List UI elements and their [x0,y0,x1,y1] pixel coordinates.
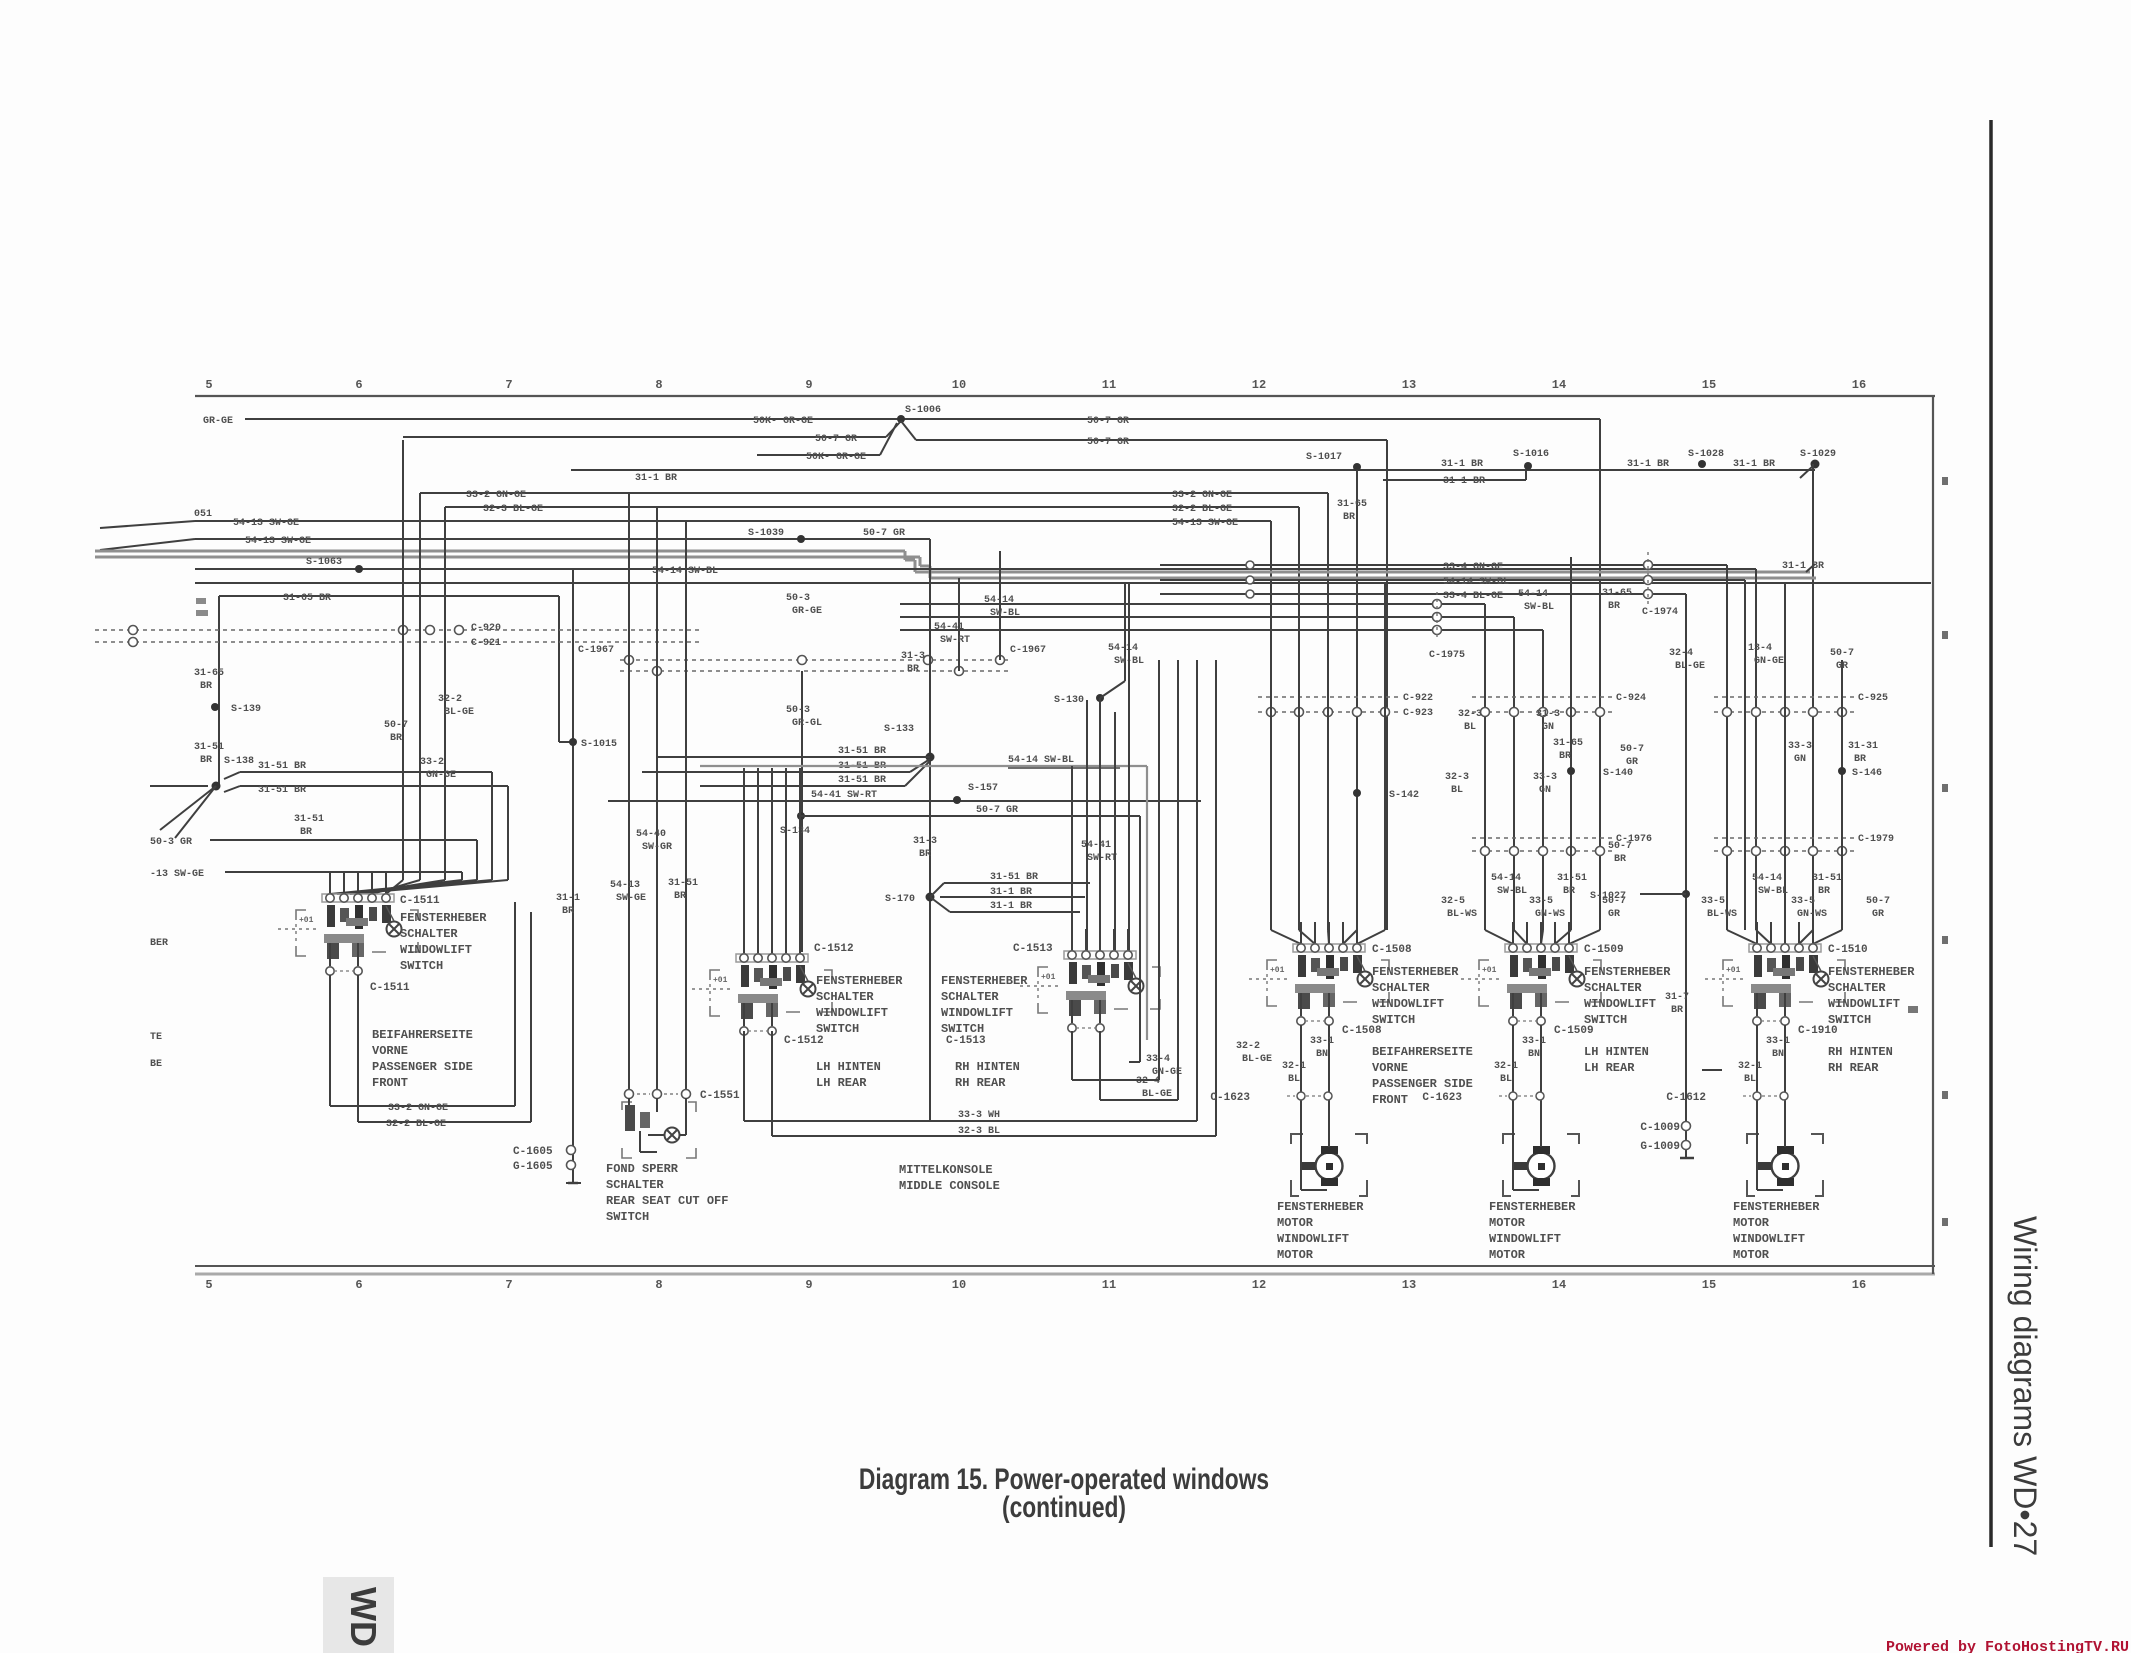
svg-text:RH REAR: RH REAR [955,1076,1006,1090]
svg-text:LH HINTEN: LH HINTEN [1584,1045,1649,1059]
svg-text:33-2 GN-GE: 33-2 GN-GE [466,490,526,501]
svg-text:BR: BR [907,664,919,675]
svg-text:S-142: S-142 [1389,790,1419,801]
svg-text:54-14 SW-BL: 54-14 SW-BL [1008,755,1074,766]
svg-text:32-3: 32-3 [1445,772,1469,783]
svg-text:31-7: 31-7 [1665,992,1689,1003]
svg-text:RH REAR: RH REAR [1828,1061,1879,1075]
svg-text:LH REAR: LH REAR [816,1076,867,1090]
svg-text:WINDOWLIFT: WINDOWLIFT [400,943,472,957]
svg-text:33-5: 33-5 [1701,896,1725,907]
svg-text:31-65: 31-65 [1602,588,1632,599]
svg-text:5: 5 [205,378,212,392]
svg-text:33-5: 33-5 [1529,896,1553,907]
svg-text:WINDOWLIFT: WINDOWLIFT [941,1006,1013,1020]
svg-text:051: 051 [194,509,212,520]
svg-text:50-7: 50-7 [1866,896,1890,907]
svg-text:33-3: 33-3 [1788,741,1812,752]
svg-text:C-1979: C-1979 [1858,834,1894,845]
svg-text:BEIFAHRERSEITE: BEIFAHRERSEITE [372,1028,473,1042]
svg-text:FENSTERHEBER: FENSTERHEBER [1372,965,1459,979]
svg-text:SW-GE: SW-GE [616,893,646,904]
svg-text:31-51: 31-51 [294,814,324,825]
svg-text:33-3 WH: 33-3 WH [958,1110,1000,1121]
svg-text:G-1605: G-1605 [513,1161,553,1173]
svg-text:50-7: 50-7 [1620,744,1644,755]
svg-text:MOTOR: MOTOR [1733,1216,1770,1230]
svg-text:7: 7 [505,1278,512,1292]
svg-text:32-3 BL-GE: 32-3 BL-GE [483,504,543,515]
svg-text:WINDOWLIFT: WINDOWLIFT [1733,1232,1805,1246]
svg-text:16: 16 [1852,1278,1866,1292]
svg-text:BR: BR [674,891,686,902]
svg-text:SCHALTER: SCHALTER [941,990,999,1004]
svg-text:GN-WS: GN-WS [1797,909,1827,920]
svg-text:-13 SW-GE: -13 SW-GE [150,869,204,880]
svg-text:WINDOWLIFT: WINDOWLIFT [1584,997,1656,1011]
svg-text:GR: GR [1626,757,1638,768]
svg-text:C-1508: C-1508 [1372,944,1412,956]
svg-text:REAR SEAT CUT OFF: REAR SEAT CUT OFF [606,1194,728,1208]
svg-text:BL-GE: BL-GE [1142,1089,1172,1100]
svg-text:BR: BR [562,906,574,917]
svg-text:11: 11 [1102,1278,1116,1292]
svg-text:MOTOR: MOTOR [1277,1248,1314,1262]
svg-text:50-7: 50-7 [1830,648,1854,659]
svg-text:BL: BL [1288,1074,1300,1085]
svg-text:50K- GR-GE: 50K- GR-GE [753,416,813,427]
svg-text:BL-GE: BL-GE [1675,661,1705,672]
svg-text:14: 14 [1552,378,1566,392]
svg-text:31-65: 31-65 [1337,499,1367,510]
svg-text:31-51 BR: 31-51 BR [838,746,886,757]
svg-text:SWITCH: SWITCH [941,1022,984,1036]
svg-text:FRONT: FRONT [372,1076,408,1090]
svg-text:C-1967: C-1967 [1010,645,1046,656]
svg-text:14: 14 [1552,1278,1566,1292]
svg-text:SCHALTER: SCHALTER [400,927,458,941]
svg-text:31-1 BR: 31-1 BR [1443,476,1485,487]
svg-text:54-40: 54-40 [636,829,666,840]
svg-text:SW-GR: SW-GR [642,842,672,853]
svg-text:31-51: 31-51 [1812,873,1842,884]
svg-text:31-1 BR: 31-1 BR [1627,459,1669,470]
svg-text:C-923: C-923 [1403,708,1433,719]
svg-text:12: 12 [1252,378,1266,392]
svg-text:FENSTERHEBER: FENSTERHEBER [1733,1200,1820,1214]
svg-text:WD: WD [343,1587,384,1647]
svg-text:WINDOWLIFT: WINDOWLIFT [1489,1232,1561,1246]
svg-text:54-14: 54-14 [1752,873,1782,884]
svg-text:32-2: 32-2 [438,694,462,705]
svg-text:54-41: 54-41 [934,622,964,633]
svg-text:54-13 SW-GE: 54-13 SW-GE [233,518,299,529]
svg-text:BR: BR [1343,512,1355,523]
svg-text:13: 13 [1402,378,1416,392]
svg-text:16: 16 [1852,378,1866,392]
svg-text:SCHALTER: SCHALTER [816,990,874,1004]
svg-text:C-921: C-921 [471,638,501,649]
svg-text:C-1009: C-1009 [1640,1122,1680,1134]
svg-text:C-1511: C-1511 [370,982,410,994]
svg-text:S-1063: S-1063 [306,557,342,568]
svg-text:S-1027: S-1027 [1590,891,1626,902]
svg-text:SCHALTER: SCHALTER [1372,981,1430,995]
svg-text:LH HINTEN: LH HINTEN [816,1060,881,1074]
svg-text:BL: BL [1744,1074,1756,1085]
svg-text:BR: BR [1818,886,1830,897]
svg-text:FENSTERHEBER: FENSTERHEBER [1277,1200,1364,1214]
svg-text:FOND SPERR: FOND SPERR [606,1162,679,1176]
svg-text:32-1: 32-1 [1282,1061,1306,1072]
svg-text:FENSTERHEBER: FENSTERHEBER [1828,965,1915,979]
svg-text:C-1512: C-1512 [814,943,854,955]
svg-text:BN: BN [1528,1049,1540,1060]
svg-text:S-1017: S-1017 [1306,452,1342,463]
svg-text:54-41 SW-RT: 54-41 SW-RT [811,790,877,801]
svg-text:50-3 GR: 50-3 GR [150,837,192,848]
svg-text:9: 9 [805,1278,812,1292]
svg-text:32-2 BL-GE: 32-2 BL-GE [1172,504,1232,515]
svg-text:GN-GE: GN-GE [426,770,456,781]
svg-text:S-1015: S-1015 [581,739,617,750]
svg-text:MOTOR: MOTOR [1277,1216,1314,1230]
svg-text:GN: GN [1539,785,1551,796]
svg-text:C-1511: C-1511 [400,895,440,907]
svg-text:G-1009: G-1009 [1640,1141,1680,1153]
svg-text:S-139: S-139 [231,704,261,715]
svg-text:PASSENGER SIDE: PASSENGER SIDE [372,1060,473,1074]
svg-text:S-1029: S-1029 [1800,449,1836,460]
svg-text:SCHALTER: SCHALTER [1828,981,1886,995]
svg-text:SW-BL: SW-BL [1758,886,1788,897]
svg-text:C-1623: C-1623 [1422,1092,1462,1104]
svg-text:54-13 SW-GE: 54-13 SW-GE [245,536,311,547]
svg-text:10: 10 [952,378,966,392]
svg-text:BR: BR [200,681,212,692]
svg-text:TE: TE [150,1032,162,1043]
svg-text:GR-GE: GR-GE [792,606,822,617]
svg-text:GR: GR [1608,909,1620,920]
svg-text:C-920: C-920 [471,623,501,634]
svg-text:C-925: C-925 [1858,693,1888,704]
svg-text:50-7 GR: 50-7 GR [1087,416,1129,427]
svg-text:31-65: 31-65 [1553,738,1583,749]
svg-text:31-1 BR: 31-1 BR [1441,459,1483,470]
svg-text:RH HINTEN: RH HINTEN [1828,1045,1893,1059]
svg-text:RH HINTEN: RH HINTEN [955,1060,1020,1074]
svg-text:GN: GN [1542,722,1554,733]
svg-text:BL-GE: BL-GE [444,707,474,718]
svg-text:31-1 BR: 31-1 BR [1733,459,1775,470]
svg-text:32-3: 32-3 [1458,709,1482,720]
svg-text:32-4: 32-4 [1669,648,1693,659]
svg-text:SW-RT: SW-RT [1087,853,1117,864]
svg-text:FENSTERHEBER: FENSTERHEBER [1584,965,1671,979]
svg-text:33-1: 33-1 [1522,1036,1546,1047]
svg-text:C-1512: C-1512 [784,1035,824,1047]
svg-text:50-7: 50-7 [1608,841,1632,852]
svg-text:SW-BL: SW-BL [1497,886,1527,897]
svg-text:33-4 GN-GE: 33-4 GN-GE [1443,562,1503,573]
svg-text:BL-WS: BL-WS [1447,909,1477,920]
svg-text:S-1006: S-1006 [905,405,941,416]
svg-text:11: 11 [1102,378,1116,392]
svg-text:54-13: 54-13 [610,880,640,891]
svg-text:MOTOR: MOTOR [1489,1248,1526,1262]
svg-text:GR: GR [1872,909,1884,920]
svg-text:Wiring diagrams WD•27: Wiring diagrams WD•27 [2007,1216,2043,1556]
svg-text:BR: BR [1563,886,1575,897]
svg-text:BL-GE: BL-GE [1242,1054,1272,1065]
svg-text:SCHALTER: SCHALTER [606,1178,664,1192]
svg-text:BR: BR [200,755,212,766]
svg-text:FENSTERHEBER: FENSTERHEBER [1489,1200,1576,1214]
svg-text:54-14: 54-14 [1518,589,1548,600]
svg-text:FENSTERHEBER: FENSTERHEBER [941,974,1028,988]
svg-text:50-7: 50-7 [384,720,408,731]
svg-text:54-14: 54-14 [984,595,1014,606]
svg-text:31-51 BR: 31-51 BR [990,872,1038,883]
svg-text:VORNE: VORNE [372,1044,408,1058]
svg-text:BR: BR [390,733,402,744]
svg-text:33-5: 33-5 [1791,896,1815,907]
svg-text:C-1509: C-1509 [1584,944,1624,956]
svg-text:10: 10 [952,1278,966,1292]
svg-text:31-51: 31-51 [1557,873,1587,884]
svg-text:13: 13 [1402,1278,1416,1292]
svg-text:FENSTERHEBER: FENSTERHEBER [816,974,903,988]
svg-text:SW-BL: SW-BL [990,608,1020,619]
svg-text:C-922: C-922 [1403,693,1433,704]
svg-text:33-2 GN-GE: 33-2 GN-GE [388,1103,448,1114]
svg-text:MOTOR: MOTOR [1489,1216,1526,1230]
svg-text:BR: BR [1614,854,1626,865]
svg-text:31-3: 31-3 [1536,709,1560,720]
svg-text:C-1513: C-1513 [1013,943,1053,955]
svg-text:31-31: 31-31 [1848,741,1878,752]
svg-text:S-146: S-146 [1852,768,1882,779]
svg-text:50-7 GR: 50-7 GR [976,805,1018,816]
svg-text:S-138: S-138 [224,756,254,767]
svg-text:33-2: 33-2 [420,757,444,768]
svg-text:BE: BE [150,1059,162,1070]
svg-text:BR: BR [919,849,931,860]
svg-text:31-1 BR: 31-1 BR [990,901,1032,912]
svg-text:31-51: 31-51 [194,742,224,753]
svg-text:32-1: 32-1 [1738,1061,1762,1072]
svg-text:54-14: 54-14 [1108,643,1138,654]
svg-text:33-1: 33-1 [1310,1036,1334,1047]
svg-text:54-41: 54-41 [1081,840,1111,851]
svg-text:FENSTERHEBER: FENSTERHEBER [400,911,487,925]
svg-text:SW-BL: SW-BL [1524,602,1554,613]
svg-text:C-1510: C-1510 [1828,944,1868,956]
svg-text:32-4: 32-4 [1136,1076,1160,1087]
svg-text:15: 15 [1702,1278,1716,1292]
svg-text:BL: BL [1500,1074,1512,1085]
svg-text:33-3: 33-3 [1533,772,1557,783]
svg-text:S-1028: S-1028 [1688,449,1724,460]
svg-text:8: 8 [655,378,662,392]
svg-text:33-1: 33-1 [1766,1036,1790,1047]
svg-text:WINDOWLIFT: WINDOWLIFT [1277,1232,1349,1246]
svg-text:50-7 GR: 50-7 GR [1087,437,1129,448]
svg-text:31-51 BR: 31-51 BR [838,775,886,786]
svg-text:33-4 BL-GE: 33-4 BL-GE [1443,591,1503,602]
svg-text:50-7 GR: 50-7 GR [815,434,857,445]
svg-text:12: 12 [1252,1278,1266,1292]
svg-text:BR: BR [1559,751,1571,762]
svg-text:32-2: 32-2 [1236,1041,1260,1052]
svg-text:BR: BR [1671,1005,1683,1016]
svg-text:32-3 BL: 32-3 BL [958,1126,1000,1137]
svg-text:MITTELKONSOLE: MITTELKONSOLE [899,1163,993,1177]
svg-text:50K- GR-GE: 50K- GR-GE [806,452,866,463]
svg-text:BEIFAHRERSEITE: BEIFAHRERSEITE [1372,1045,1473,1059]
svg-text:C-924: C-924 [1616,693,1646,704]
svg-text:C-1508: C-1508 [1342,1025,1382,1037]
svg-text:31-1: 31-1 [556,893,580,904]
svg-text:S-1039: S-1039 [748,528,784,539]
svg-text:7: 7 [505,378,512,392]
svg-text:C-1623: C-1623 [1210,1092,1250,1104]
svg-text:S-1016: S-1016 [1513,449,1549,460]
svg-text:BN: BN [1316,1049,1328,1060]
svg-text:VORNE: VORNE [1372,1061,1408,1075]
svg-text:GR: GR [1836,661,1848,672]
svg-text:WINDOWLIFT: WINDOWLIFT [1828,997,1900,1011]
svg-text:50-3: 50-3 [786,593,810,604]
svg-text:GN: GN [1794,754,1806,765]
svg-text:9: 9 [805,378,812,392]
svg-text:13-4: 13-4 [1748,643,1772,654]
svg-text:(continued): (continued) [1002,1490,1126,1524]
svg-text:FRONT: FRONT [1372,1093,1408,1107]
svg-text:S-134: S-134 [780,826,810,837]
svg-text:SWITCH: SWITCH [606,1210,649,1224]
svg-text:GR-GL: GR-GL [792,718,822,729]
svg-text:54-14: 54-14 [1491,873,1521,884]
svg-text:C-1513: C-1513 [946,1035,986,1047]
svg-text:33-2 GN-GE: 33-2 GN-GE [1172,490,1232,501]
svg-text:BL: BL [1464,722,1476,733]
svg-text:31-65 BR: 31-65 BR [283,593,331,604]
svg-text:31-51 BR: 31-51 BR [258,785,306,796]
svg-text:31-1 BR: 31-1 BR [990,887,1032,898]
svg-text:BN: BN [1772,1049,1784,1060]
svg-text:31-3: 31-3 [913,836,937,847]
svg-text:C-1509: C-1509 [1554,1025,1594,1037]
svg-text:C-1975: C-1975 [1429,650,1465,661]
svg-text:6: 6 [355,378,362,392]
svg-text:15: 15 [1702,378,1716,392]
svg-text:C-1967: C-1967 [578,645,614,656]
svg-text:31-51 BR: 31-51 BR [258,761,306,772]
svg-text:MOTOR: MOTOR [1733,1248,1770,1262]
svg-text:BR: BR [1608,601,1620,612]
svg-text:MIDDLE CONSOLE: MIDDLE CONSOLE [899,1179,1000,1193]
svg-text:50-7 GR: 50-7 GR [863,528,905,539]
svg-text:WINDOWLIFT: WINDOWLIFT [1372,997,1444,1011]
svg-text:5: 5 [205,1278,212,1292]
svg-text:C-1612: C-1612 [1666,1092,1706,1104]
svg-text:C-1974: C-1974 [1642,607,1678,618]
svg-text:SW-RT: SW-RT [940,635,970,646]
svg-text:50-3: 50-3 [786,705,810,716]
svg-text:S-140: S-140 [1603,768,1633,779]
svg-text:32-5: 32-5 [1441,896,1465,907]
svg-text:C-1605: C-1605 [513,1146,553,1158]
svg-text:S-157: S-157 [968,783,998,794]
svg-text:C-1551: C-1551 [700,1090,740,1102]
svg-text:SWITCH: SWITCH [400,959,443,973]
svg-text:31-1 BR: 31-1 BR [1782,561,1824,572]
svg-text:BL-WS: BL-WS [1707,909,1737,920]
svg-text:Powered by FotoHostingTV.RU: Powered by FotoHostingTV.RU [1886,1639,2129,1653]
svg-text:31-3: 31-3 [901,651,925,662]
svg-text:GN-GE: GN-GE [1754,656,1784,667]
svg-text:8: 8 [655,1278,662,1292]
svg-text:LH REAR: LH REAR [1584,1061,1635,1075]
svg-text:GR-GE: GR-GE [203,416,233,427]
svg-text:BL: BL [1451,785,1463,796]
svg-text:BER: BER [150,938,168,949]
svg-text:32-2 BL-GE: 32-2 BL-GE [386,1119,446,1130]
svg-text:S-170: S-170 [885,894,915,905]
svg-text:C-1910: C-1910 [1798,1025,1838,1037]
svg-text:PASSENGER SIDE: PASSENGER SIDE [1372,1077,1473,1091]
svg-text:SCHALTER: SCHALTER [1584,981,1642,995]
svg-text:54-13 SW-GE: 54-13 SW-GE [1172,518,1238,529]
svg-text:WINDOWLIFT: WINDOWLIFT [816,1006,888,1020]
svg-text:31-65: 31-65 [194,668,224,679]
svg-text:31-51: 31-51 [668,878,698,889]
svg-text:31-1 BR: 31-1 BR [635,473,677,484]
svg-text:GN-WS: GN-WS [1535,909,1565,920]
svg-text:BR: BR [1854,754,1866,765]
svg-text:32-1: 32-1 [1494,1061,1518,1072]
svg-text:SWITCH: SWITCH [816,1022,859,1036]
svg-text:54-14 SW-BL: 54-14 SW-BL [1443,577,1509,588]
svg-text:S-133: S-133 [884,724,914,735]
svg-text:BR: BR [300,827,312,838]
svg-text:6: 6 [355,1278,362,1292]
svg-text:S-130: S-130 [1054,695,1084,706]
